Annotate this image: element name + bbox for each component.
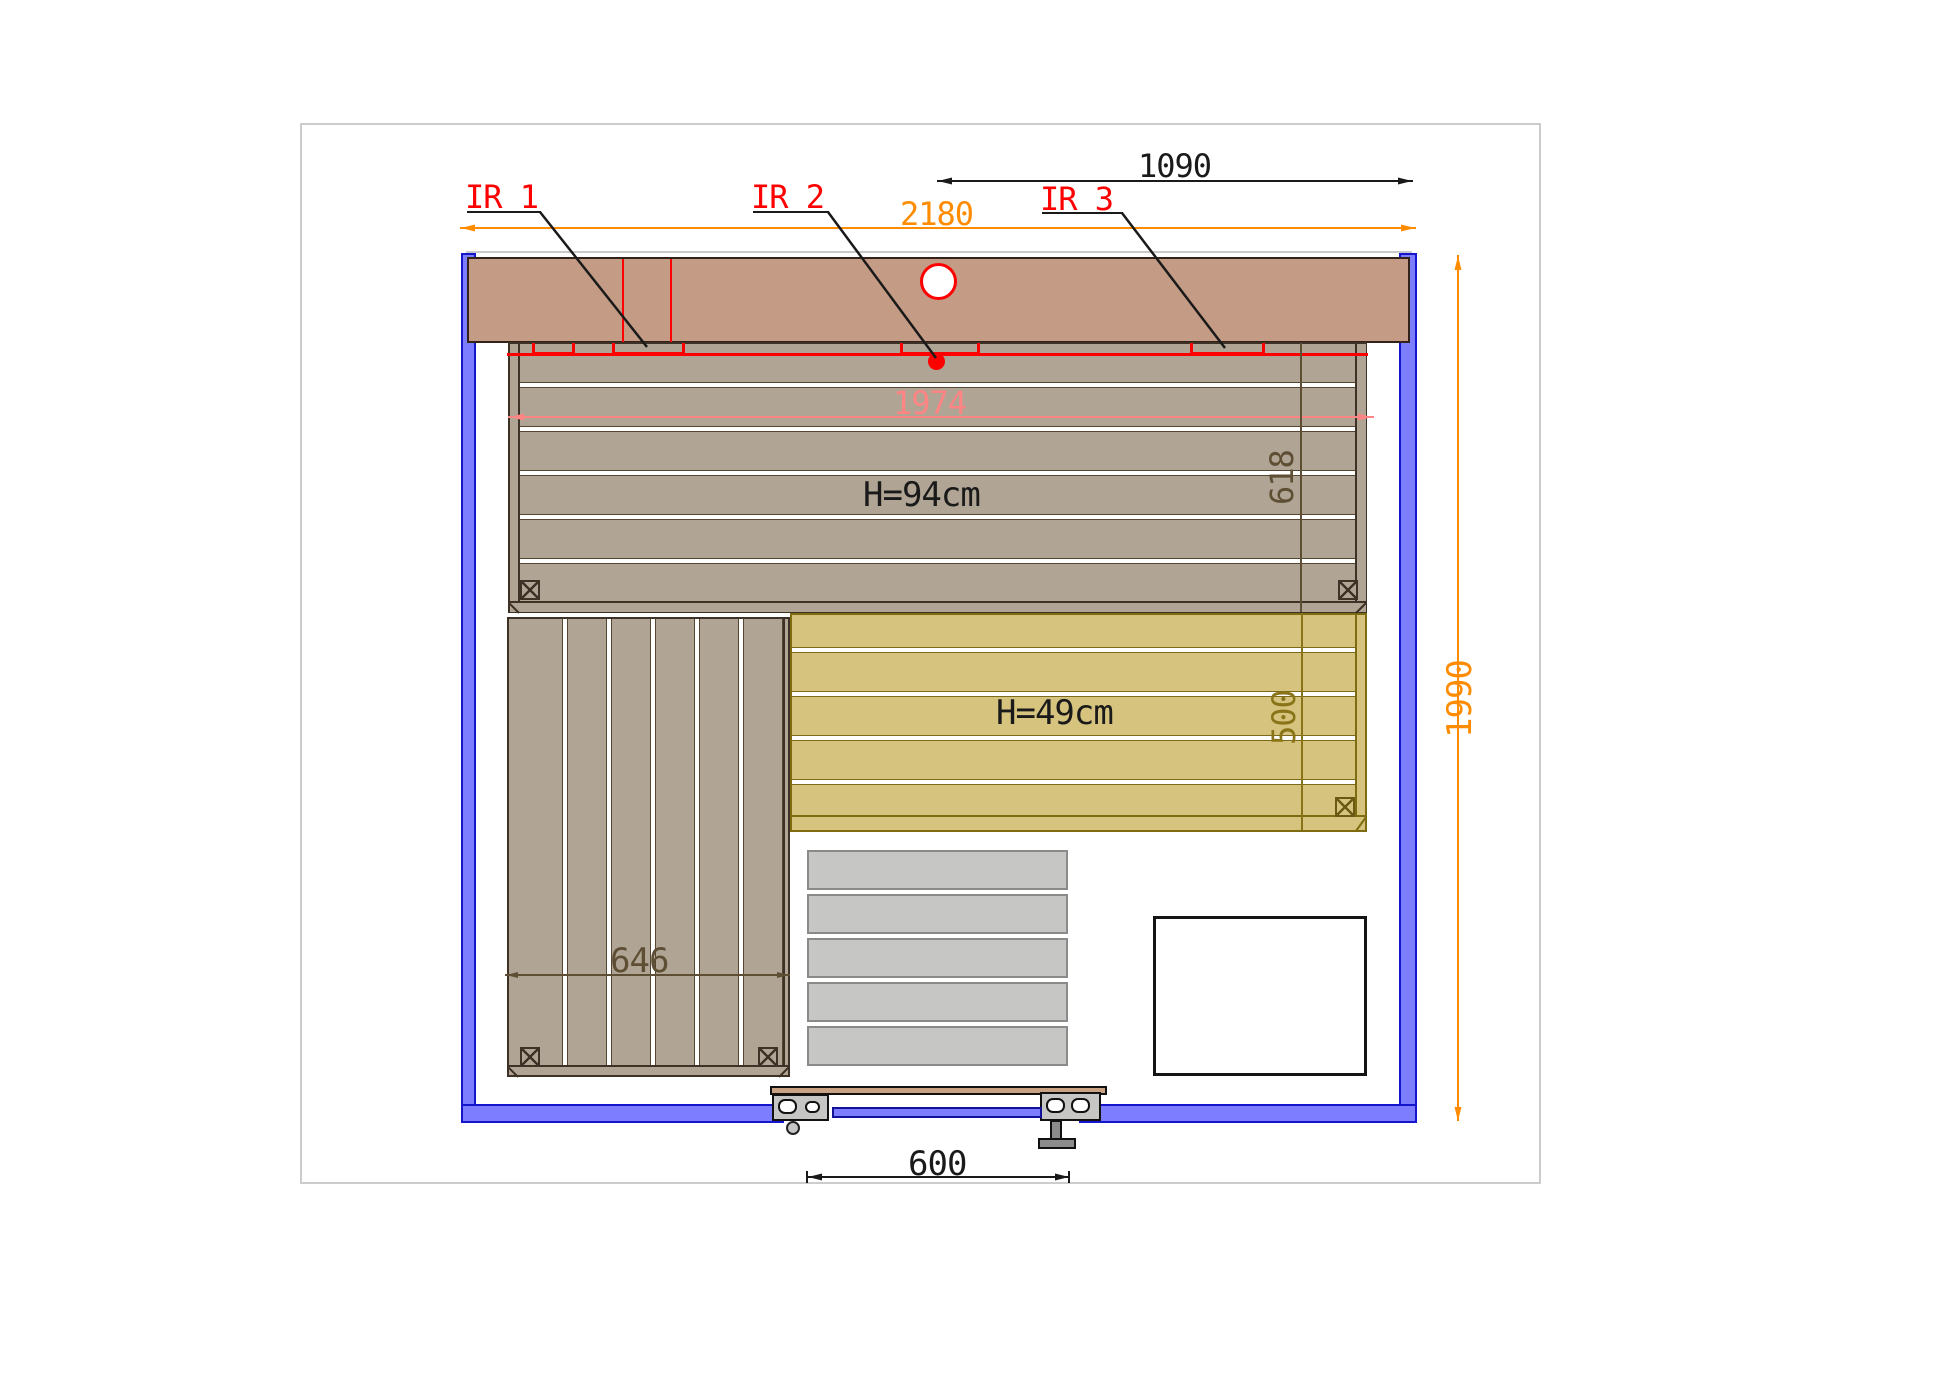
ir2-label: IR 2 xyxy=(751,181,824,213)
upper-bench-leg-left xyxy=(520,580,540,600)
dim-text-646: 646 xyxy=(610,944,668,978)
door-guide-circle xyxy=(786,1121,800,1135)
wall-bottom-right xyxy=(1079,1104,1417,1123)
ir-panel-1 xyxy=(612,343,685,355)
door-left-roller-b xyxy=(805,1101,820,1113)
floor-slat-5 xyxy=(807,1026,1068,1066)
floor-slat-2 xyxy=(807,894,1068,934)
upper-bench-height-label: H=94cm xyxy=(863,478,980,512)
dim-text-1090: 1090 xyxy=(1138,150,1211,182)
wall-bottom-left xyxy=(461,1104,784,1123)
wall-left xyxy=(461,253,476,1123)
dim-text-1990: 1990 xyxy=(1443,660,1477,738)
dim-text-618: 618 xyxy=(1266,450,1298,505)
top-bench-red-line-1 xyxy=(622,259,624,342)
side-bench xyxy=(507,617,790,1077)
floor-slat-3 xyxy=(807,938,1068,978)
dim-tick-600-left xyxy=(806,1171,808,1183)
door-left-roller-a xyxy=(778,1099,797,1114)
ir-sensor-dot xyxy=(928,353,945,370)
upper-bench-front-rail xyxy=(510,601,1366,612)
dim-text-1974: 1974 xyxy=(893,387,966,419)
lower-bench-height-label: H=49cm xyxy=(996,696,1113,730)
dim-tick-600-right xyxy=(1068,1171,1070,1183)
door-glass-panel xyxy=(832,1107,1042,1118)
heater-outline xyxy=(1153,916,1367,1076)
ceiling-lamp-circle xyxy=(920,263,957,300)
ir3-label: IR 3 xyxy=(1040,183,1113,215)
upper-bench-left-rail xyxy=(510,344,520,611)
side-bench-leg-right xyxy=(758,1047,778,1067)
door-handle-base xyxy=(1038,1138,1076,1149)
door-right-roller-a xyxy=(1046,1098,1065,1113)
top-bench-red-line-2 xyxy=(670,259,672,342)
side-bench-front-rail xyxy=(509,1065,788,1075)
floor-slat-4 xyxy=(807,982,1068,1022)
lower-bench-front-rail xyxy=(792,815,1365,830)
side-bench-right-rail xyxy=(783,619,788,1075)
dim-text-600: 600 xyxy=(908,1147,966,1181)
ir-panel-3 xyxy=(1190,343,1265,355)
floor-slat-1 xyxy=(807,850,1068,890)
sauna-floorplan: 1090 IR 1 IR 2 IR 3 2180 1974 H=94cm 618… xyxy=(0,0,1946,1375)
side-bench-leg-left xyxy=(520,1047,540,1067)
door-handle-stem xyxy=(1050,1120,1062,1140)
wall-right xyxy=(1399,253,1417,1123)
door-right-roller-b xyxy=(1071,1098,1090,1113)
dim-text-500: 500 xyxy=(1268,690,1300,745)
ir-panel-small xyxy=(532,343,575,355)
lower-bench-right-rail xyxy=(1355,615,1365,830)
upper-bench-leg-right xyxy=(1338,580,1358,600)
ir1-label: IR 1 xyxy=(465,181,538,213)
lower-bench-leg xyxy=(1335,797,1355,817)
upper-bench-right-rail xyxy=(1355,344,1366,611)
dim-text-2180: 2180 xyxy=(900,198,973,230)
